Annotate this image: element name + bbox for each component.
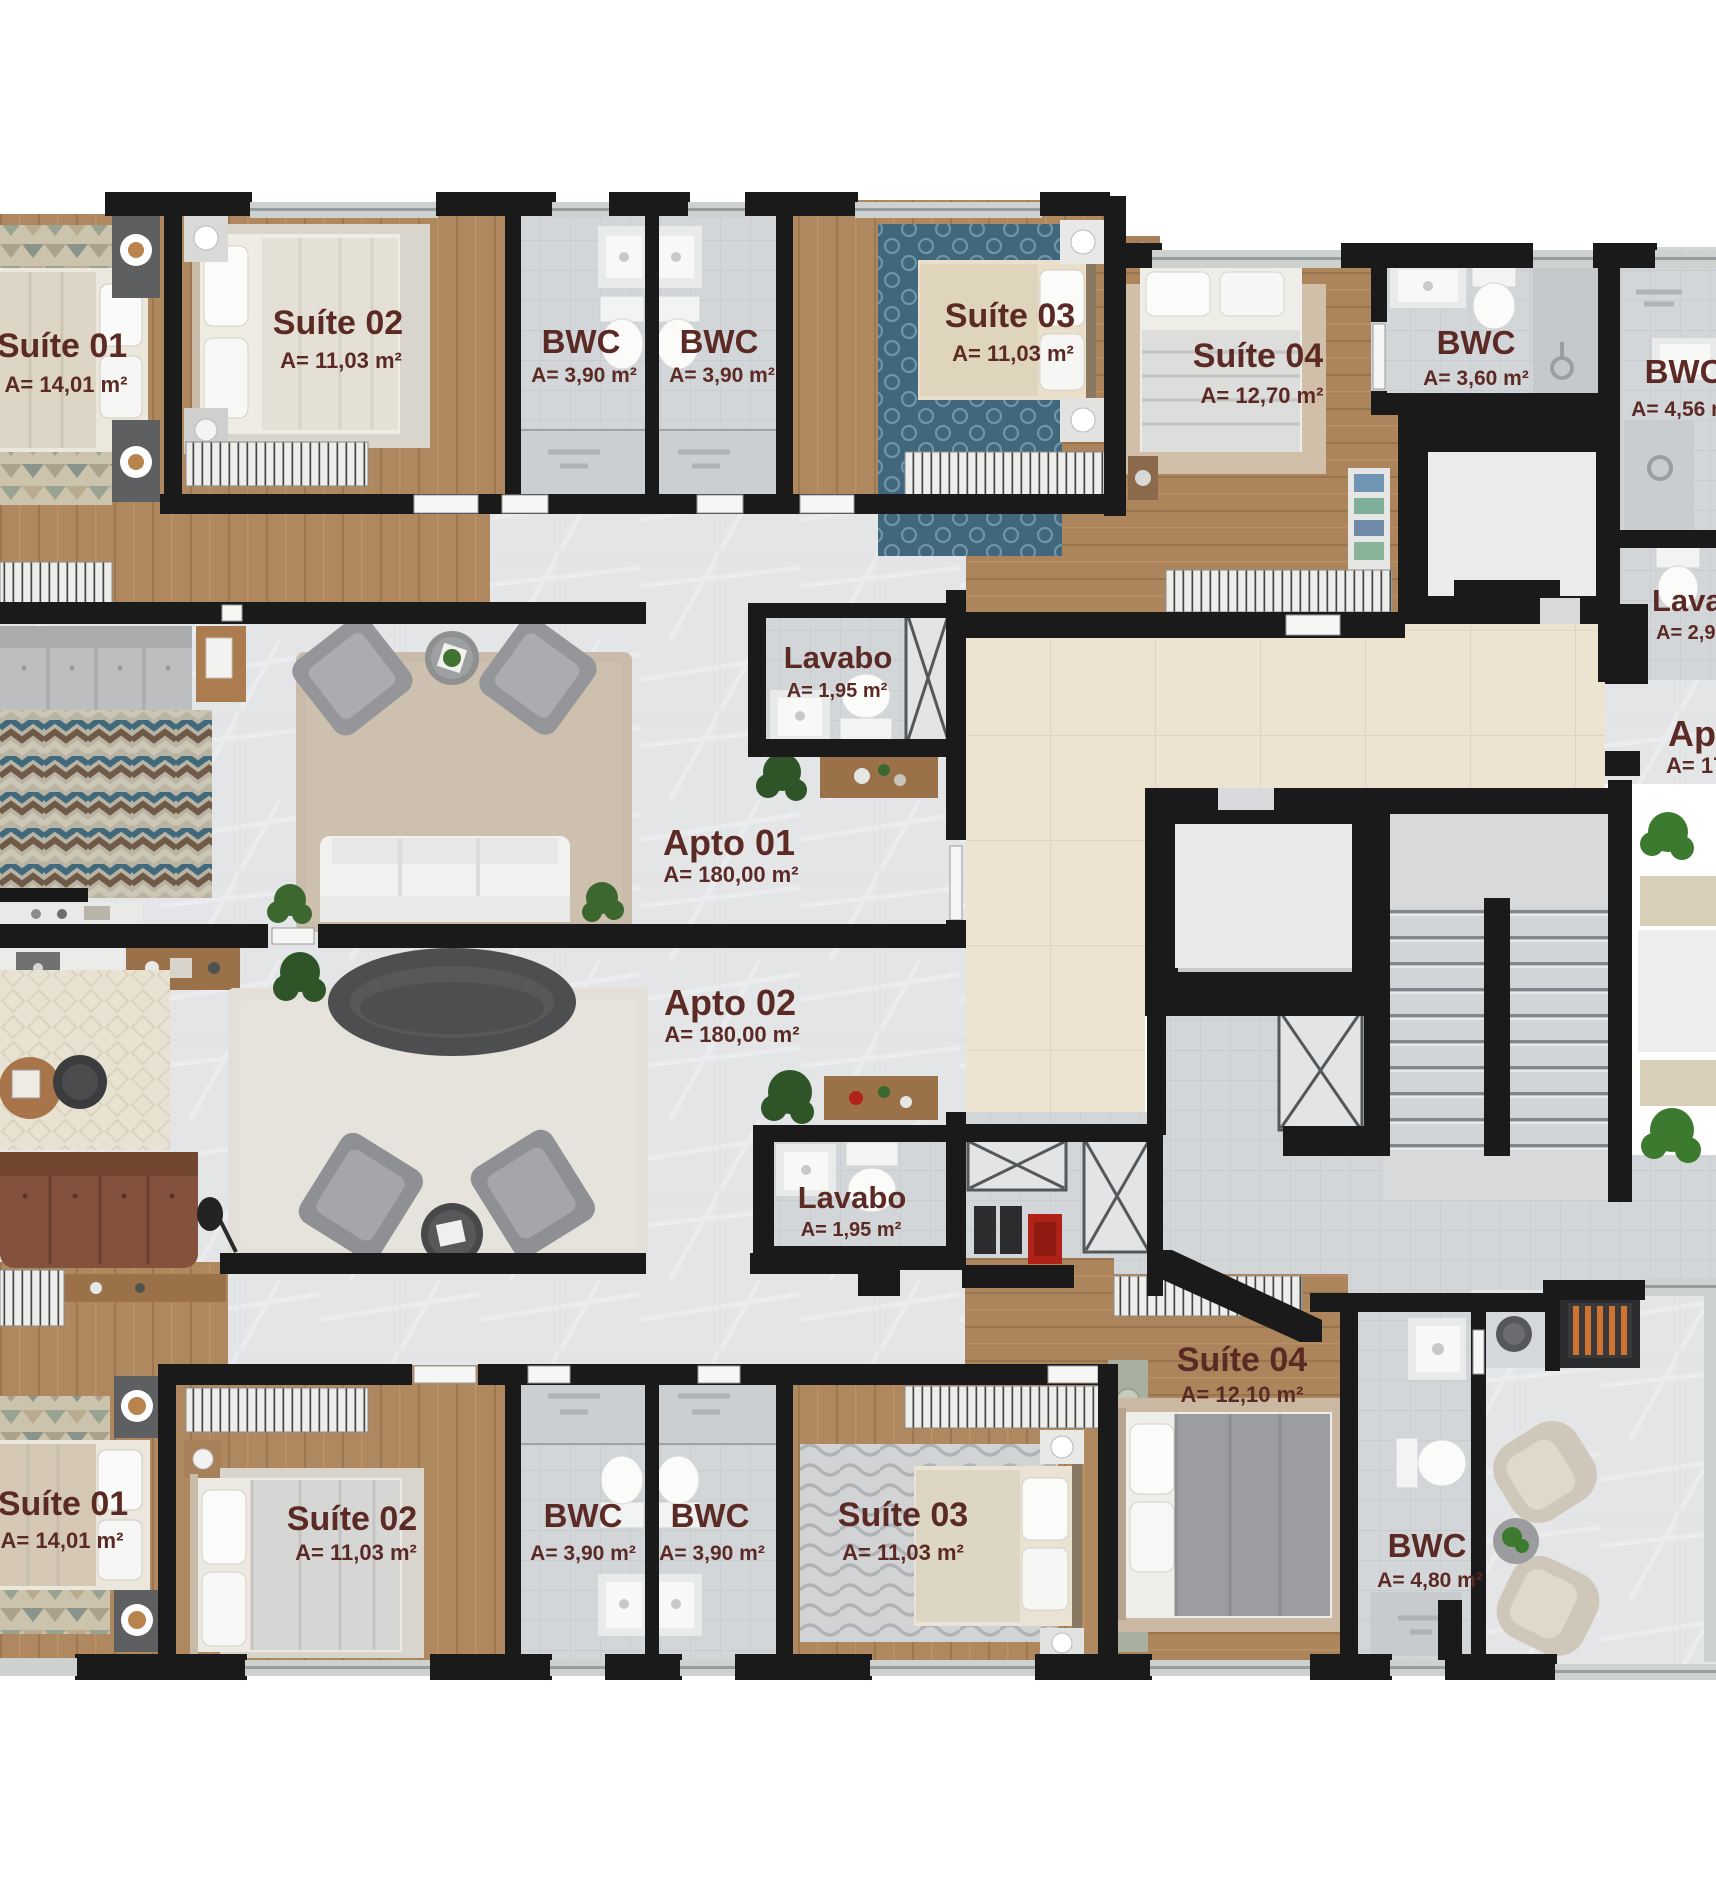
svg-text:A= 3,90 m²: A= 3,90 m² (669, 364, 775, 387)
svg-text:A= 3,90 m²: A= 3,90 m² (659, 1542, 765, 1565)
svg-text:Suíte 02: Suíte 02 (287, 1500, 417, 1538)
svg-text:Apto 02: Apto 02 (664, 982, 796, 1023)
svg-text:A= 14,01 m²: A= 14,01 m² (1, 1528, 124, 1553)
svg-text:Apto 01: Apto 01 (663, 822, 795, 863)
svg-text:BWC: BWC (1388, 1527, 1467, 1564)
svg-text:BWC: BWC (680, 323, 759, 360)
svg-text:A= 3,90 m²: A= 3,90 m² (531, 364, 637, 387)
svg-text:A= 12,10 m²: A= 12,10 m² (1181, 1382, 1304, 1407)
svg-text:BWC: BWC (1645, 353, 1716, 390)
svg-text:A= 2,95 m²: A= 2,95 m² (1656, 622, 1716, 644)
svg-text:Suíte 03: Suíte 03 (838, 1496, 968, 1534)
svg-text:A= 170,00 m²: A= 170,00 m² (1666, 753, 1716, 778)
svg-text:Suíte 02: Suíte 02 (273, 304, 403, 342)
svg-text:A= 1,95 m²: A= 1,95 m² (787, 680, 888, 702)
svg-text:A= 3,60 m²: A= 3,60 m² (1423, 367, 1529, 390)
svg-text:A= 11,03 m²: A= 11,03 m² (842, 1540, 964, 1565)
svg-text:A= 11,03 m²: A= 11,03 m² (295, 1540, 417, 1565)
svg-text:Apto 03: Apto 03 (1668, 713, 1716, 754)
svg-text:A= 3,90 m²: A= 3,90 m² (530, 1542, 636, 1565)
svg-text:Suíte 03: Suíte 03 (945, 297, 1075, 335)
svg-text:Lavabo: Lavabo (798, 1180, 907, 1215)
svg-text:BWC: BWC (542, 323, 621, 360)
svg-text:BWC: BWC (671, 1497, 750, 1534)
svg-text:Lavabo: Lavabo (784, 640, 893, 675)
svg-text:A= 4,56 m²: A= 4,56 m² (1631, 398, 1716, 421)
svg-text:A= 12,70 m²: A= 12,70 m² (1201, 383, 1324, 408)
svg-text:BWC: BWC (544, 1497, 623, 1534)
svg-text:A= 1,95 m²: A= 1,95 m² (801, 1219, 902, 1241)
svg-text:BWC: BWC (1437, 324, 1516, 361)
svg-text:Suíte 04: Suíte 04 (1177, 1341, 1307, 1379)
svg-text:Suíte 04: Suíte 04 (1193, 337, 1323, 375)
svg-text:A= 11,03 m²: A= 11,03 m² (280, 348, 402, 373)
svg-text:Suíte 01: Suíte 01 (0, 327, 127, 365)
svg-text:Lavabo: Lavabo (1652, 583, 1716, 618)
svg-text:A= 180,00 m²: A= 180,00 m² (664, 1022, 799, 1047)
svg-text:A= 4,80 m²: A= 4,80 m² (1377, 1569, 1483, 1592)
svg-text:A= 14,01 m²: A= 14,01 m² (5, 372, 128, 397)
svg-text:Suíte 01: Suíte 01 (0, 1485, 128, 1523)
svg-text:A= 11,03 m²: A= 11,03 m² (952, 341, 1074, 366)
svg-text:A= 180,00 m²: A= 180,00 m² (663, 862, 798, 887)
